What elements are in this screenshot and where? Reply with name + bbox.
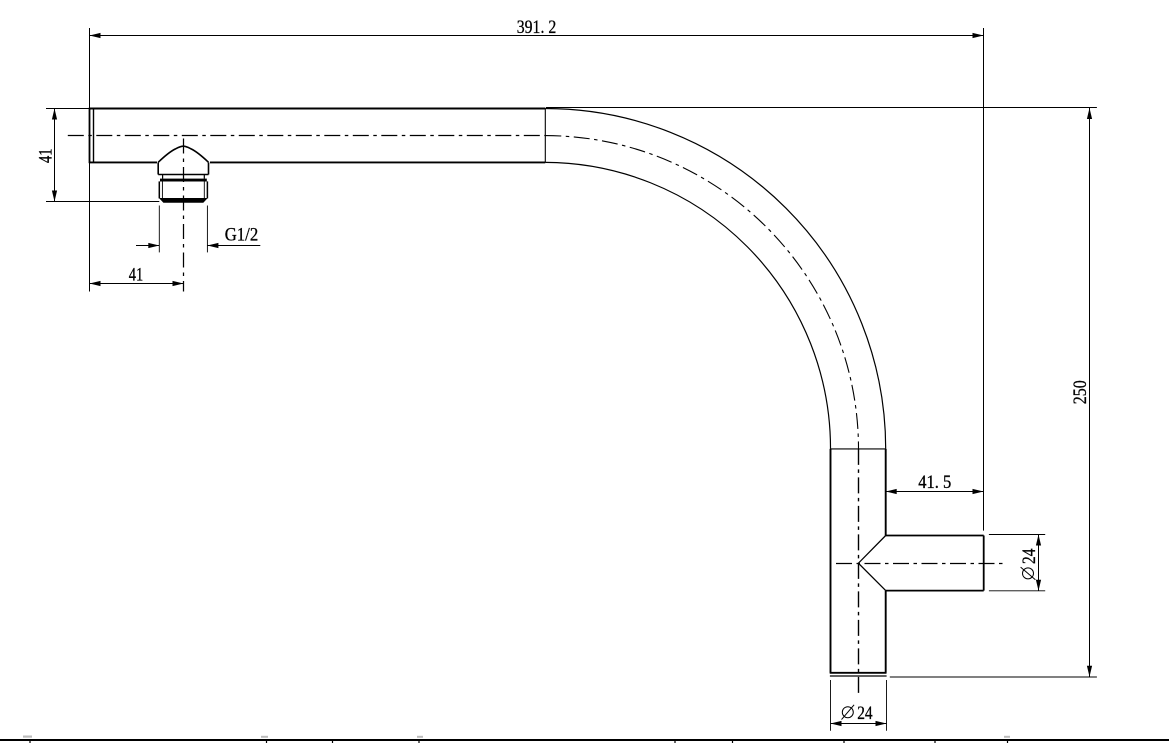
svg-text:41: 41 bbox=[37, 149, 57, 164]
svg-text:391. 2: 391. 2 bbox=[517, 18, 557, 38]
svg-text:41: 41 bbox=[129, 266, 144, 286]
svg-text:41. 5: 41. 5 bbox=[918, 473, 951, 493]
svg-text:24: 24 bbox=[1020, 549, 1040, 564]
svg-text:G1/2: G1/2 bbox=[225, 225, 259, 245]
svg-text:24: 24 bbox=[857, 704, 872, 724]
svg-text:250: 250 bbox=[1071, 380, 1091, 404]
